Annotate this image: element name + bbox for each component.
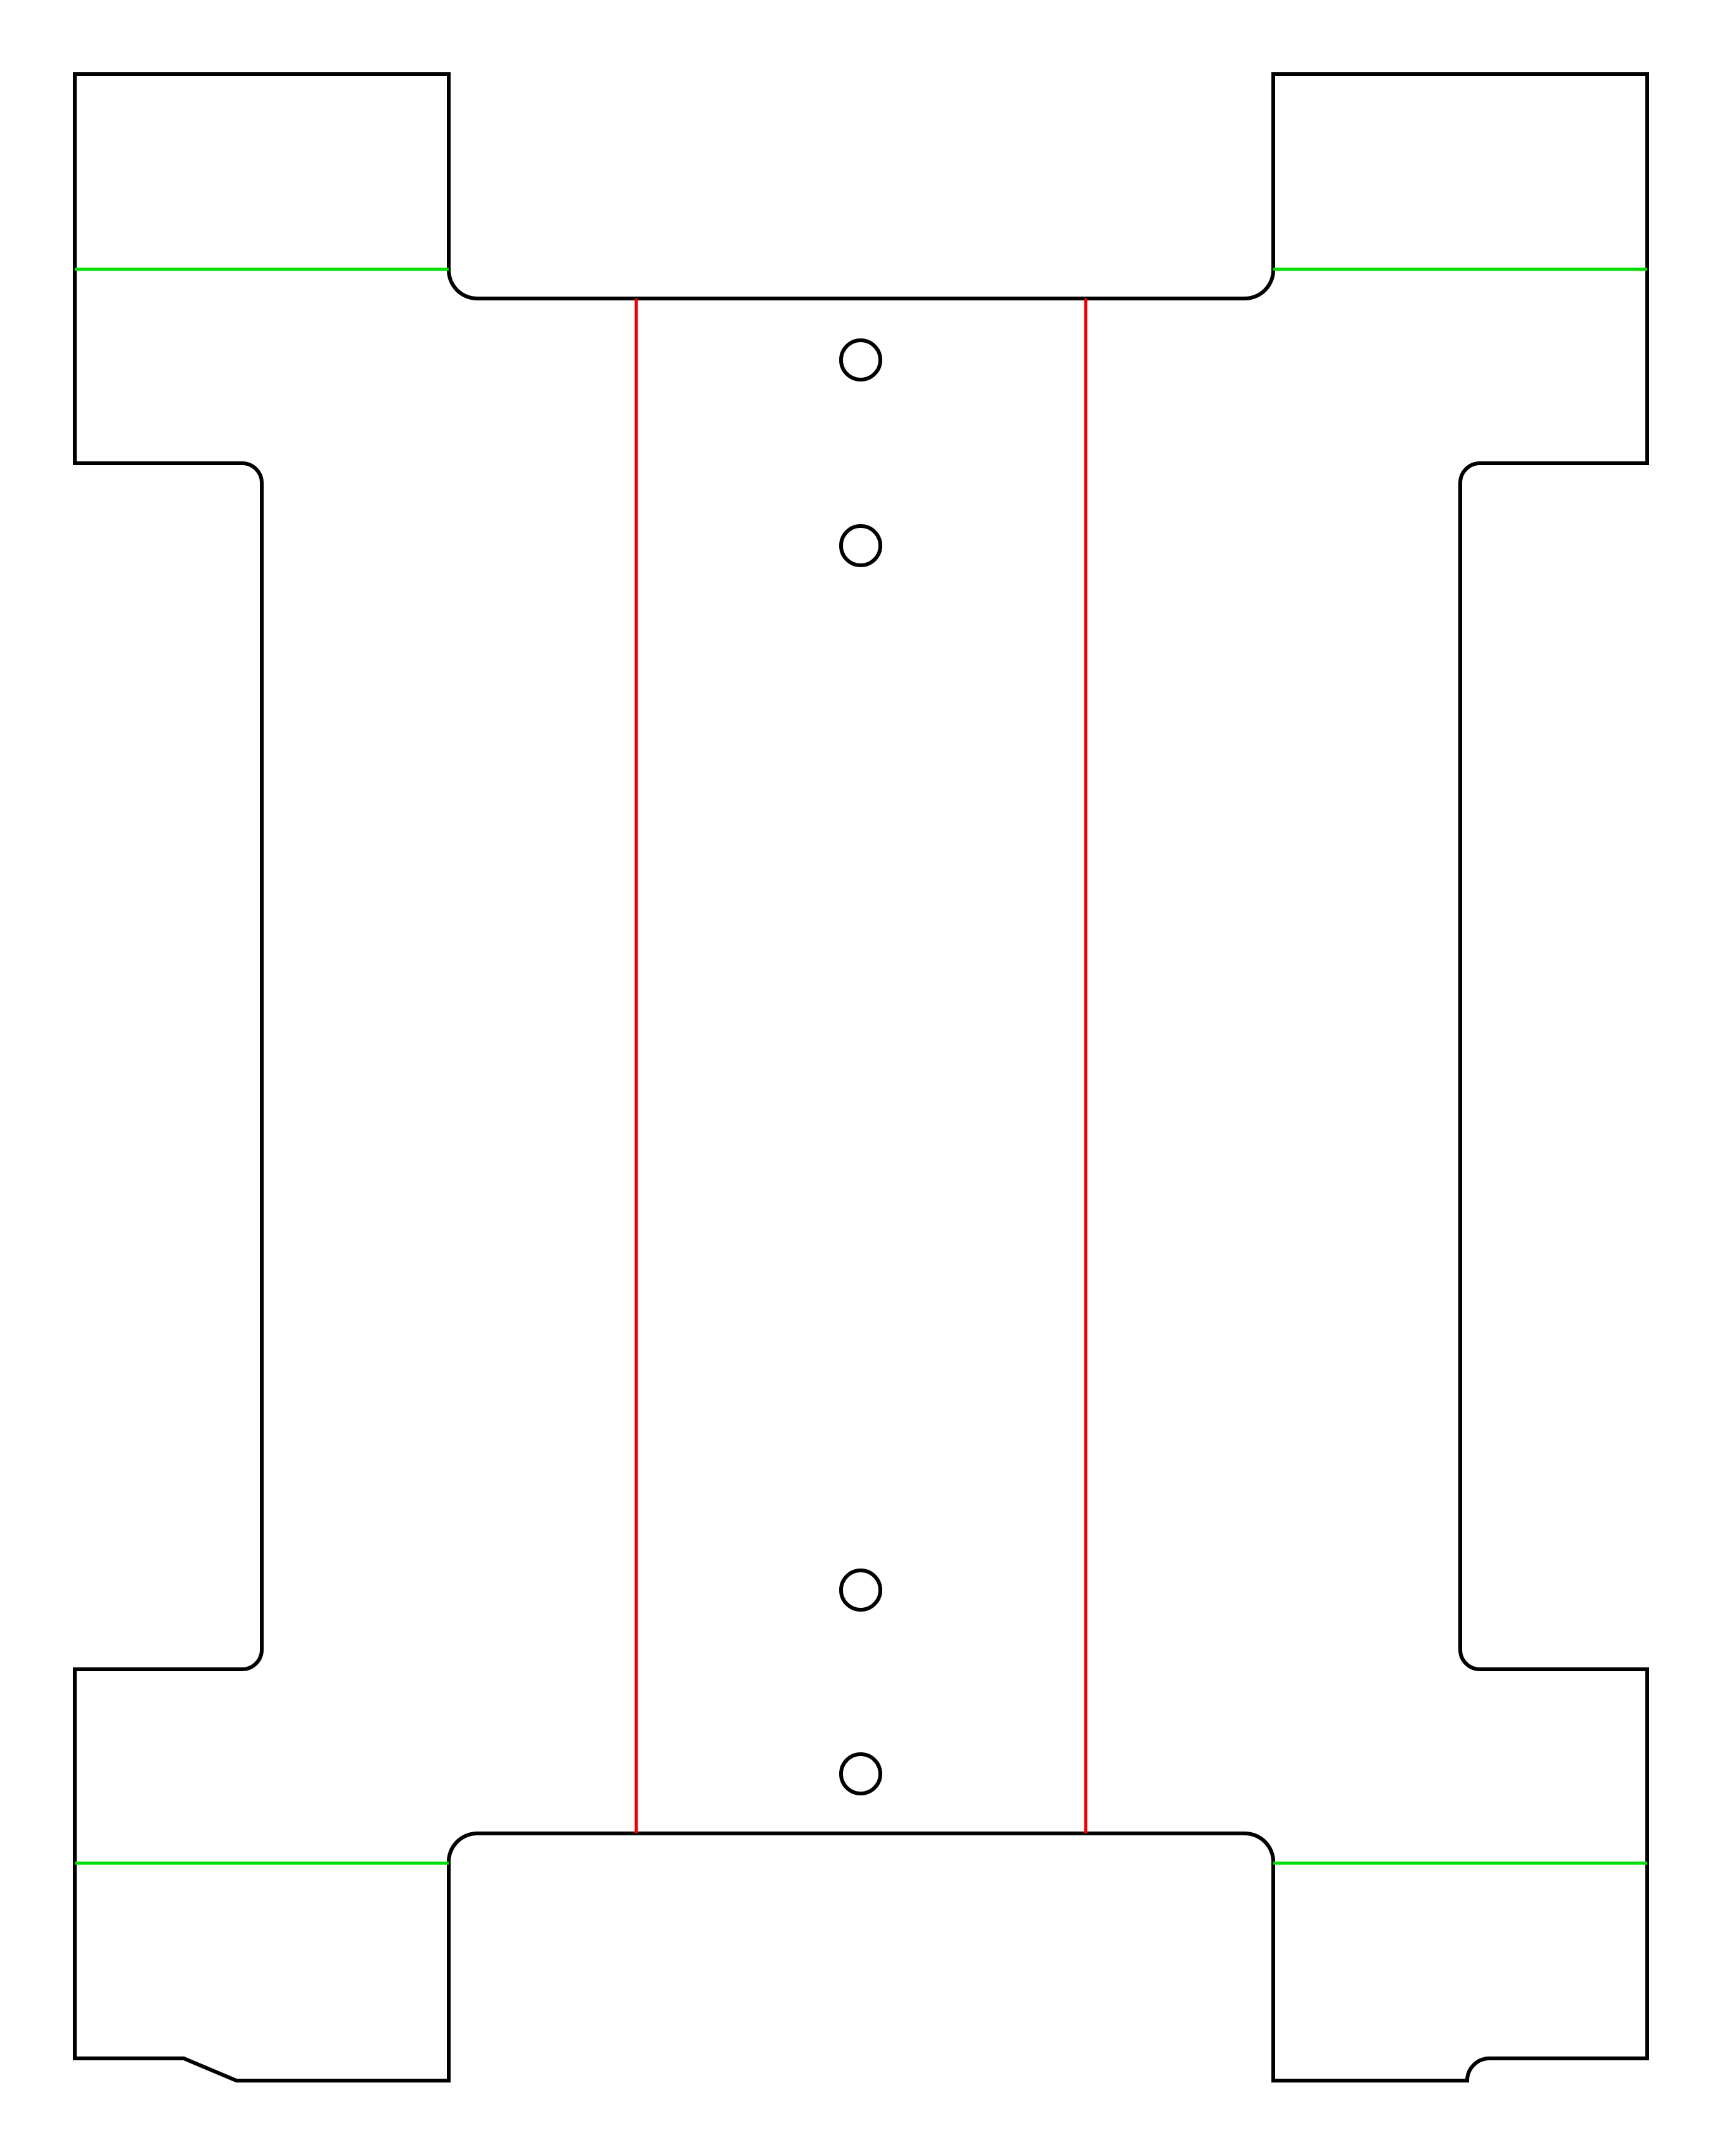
drawing-stage [0, 0, 1722, 2156]
flat-pattern-drawing [0, 0, 1722, 2156]
